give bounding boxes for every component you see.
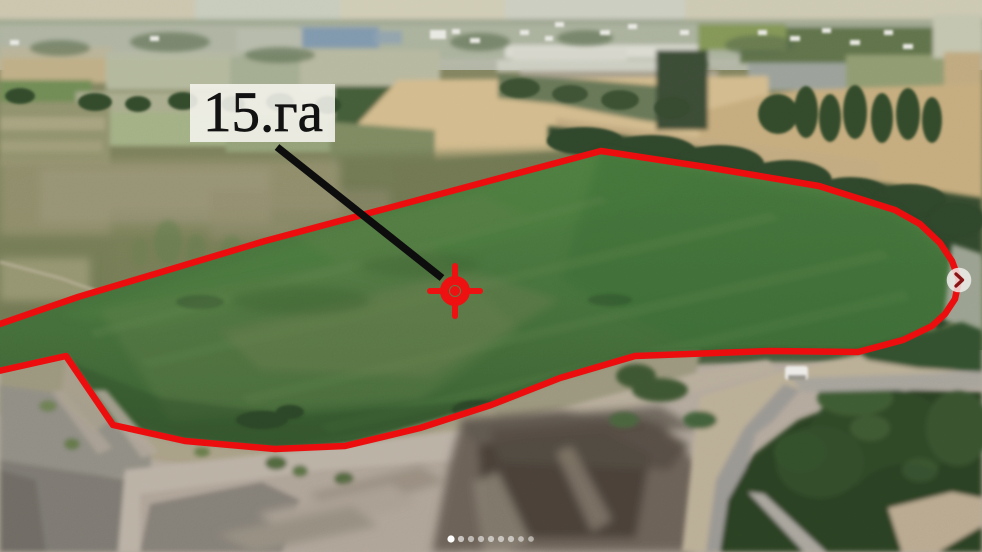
svg-text:15.га: 15.га bbox=[203, 81, 323, 144]
